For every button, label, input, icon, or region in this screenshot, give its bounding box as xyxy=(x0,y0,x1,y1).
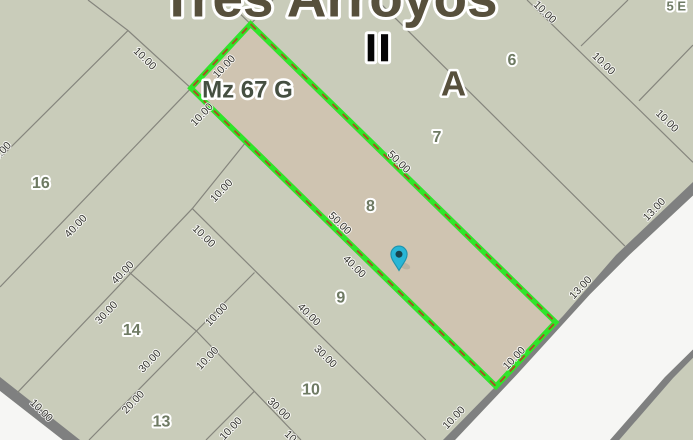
svg-text:7: 7 xyxy=(433,129,442,146)
svg-text:Tres Arroyos: Tres Arroyos xyxy=(160,0,497,29)
svg-text:5 E: 5 E xyxy=(667,0,687,14)
svg-text:8: 8 xyxy=(366,198,375,215)
svg-text:14: 14 xyxy=(123,322,141,339)
svg-text:9: 9 xyxy=(336,290,345,307)
svg-text:13: 13 xyxy=(153,413,171,430)
svg-text:10: 10 xyxy=(302,381,320,398)
svg-text:Mz 67 G: Mz 67 G xyxy=(202,77,293,104)
svg-text:16: 16 xyxy=(32,175,50,192)
svg-text:A: A xyxy=(441,65,466,104)
svg-text:6: 6 xyxy=(508,52,517,69)
